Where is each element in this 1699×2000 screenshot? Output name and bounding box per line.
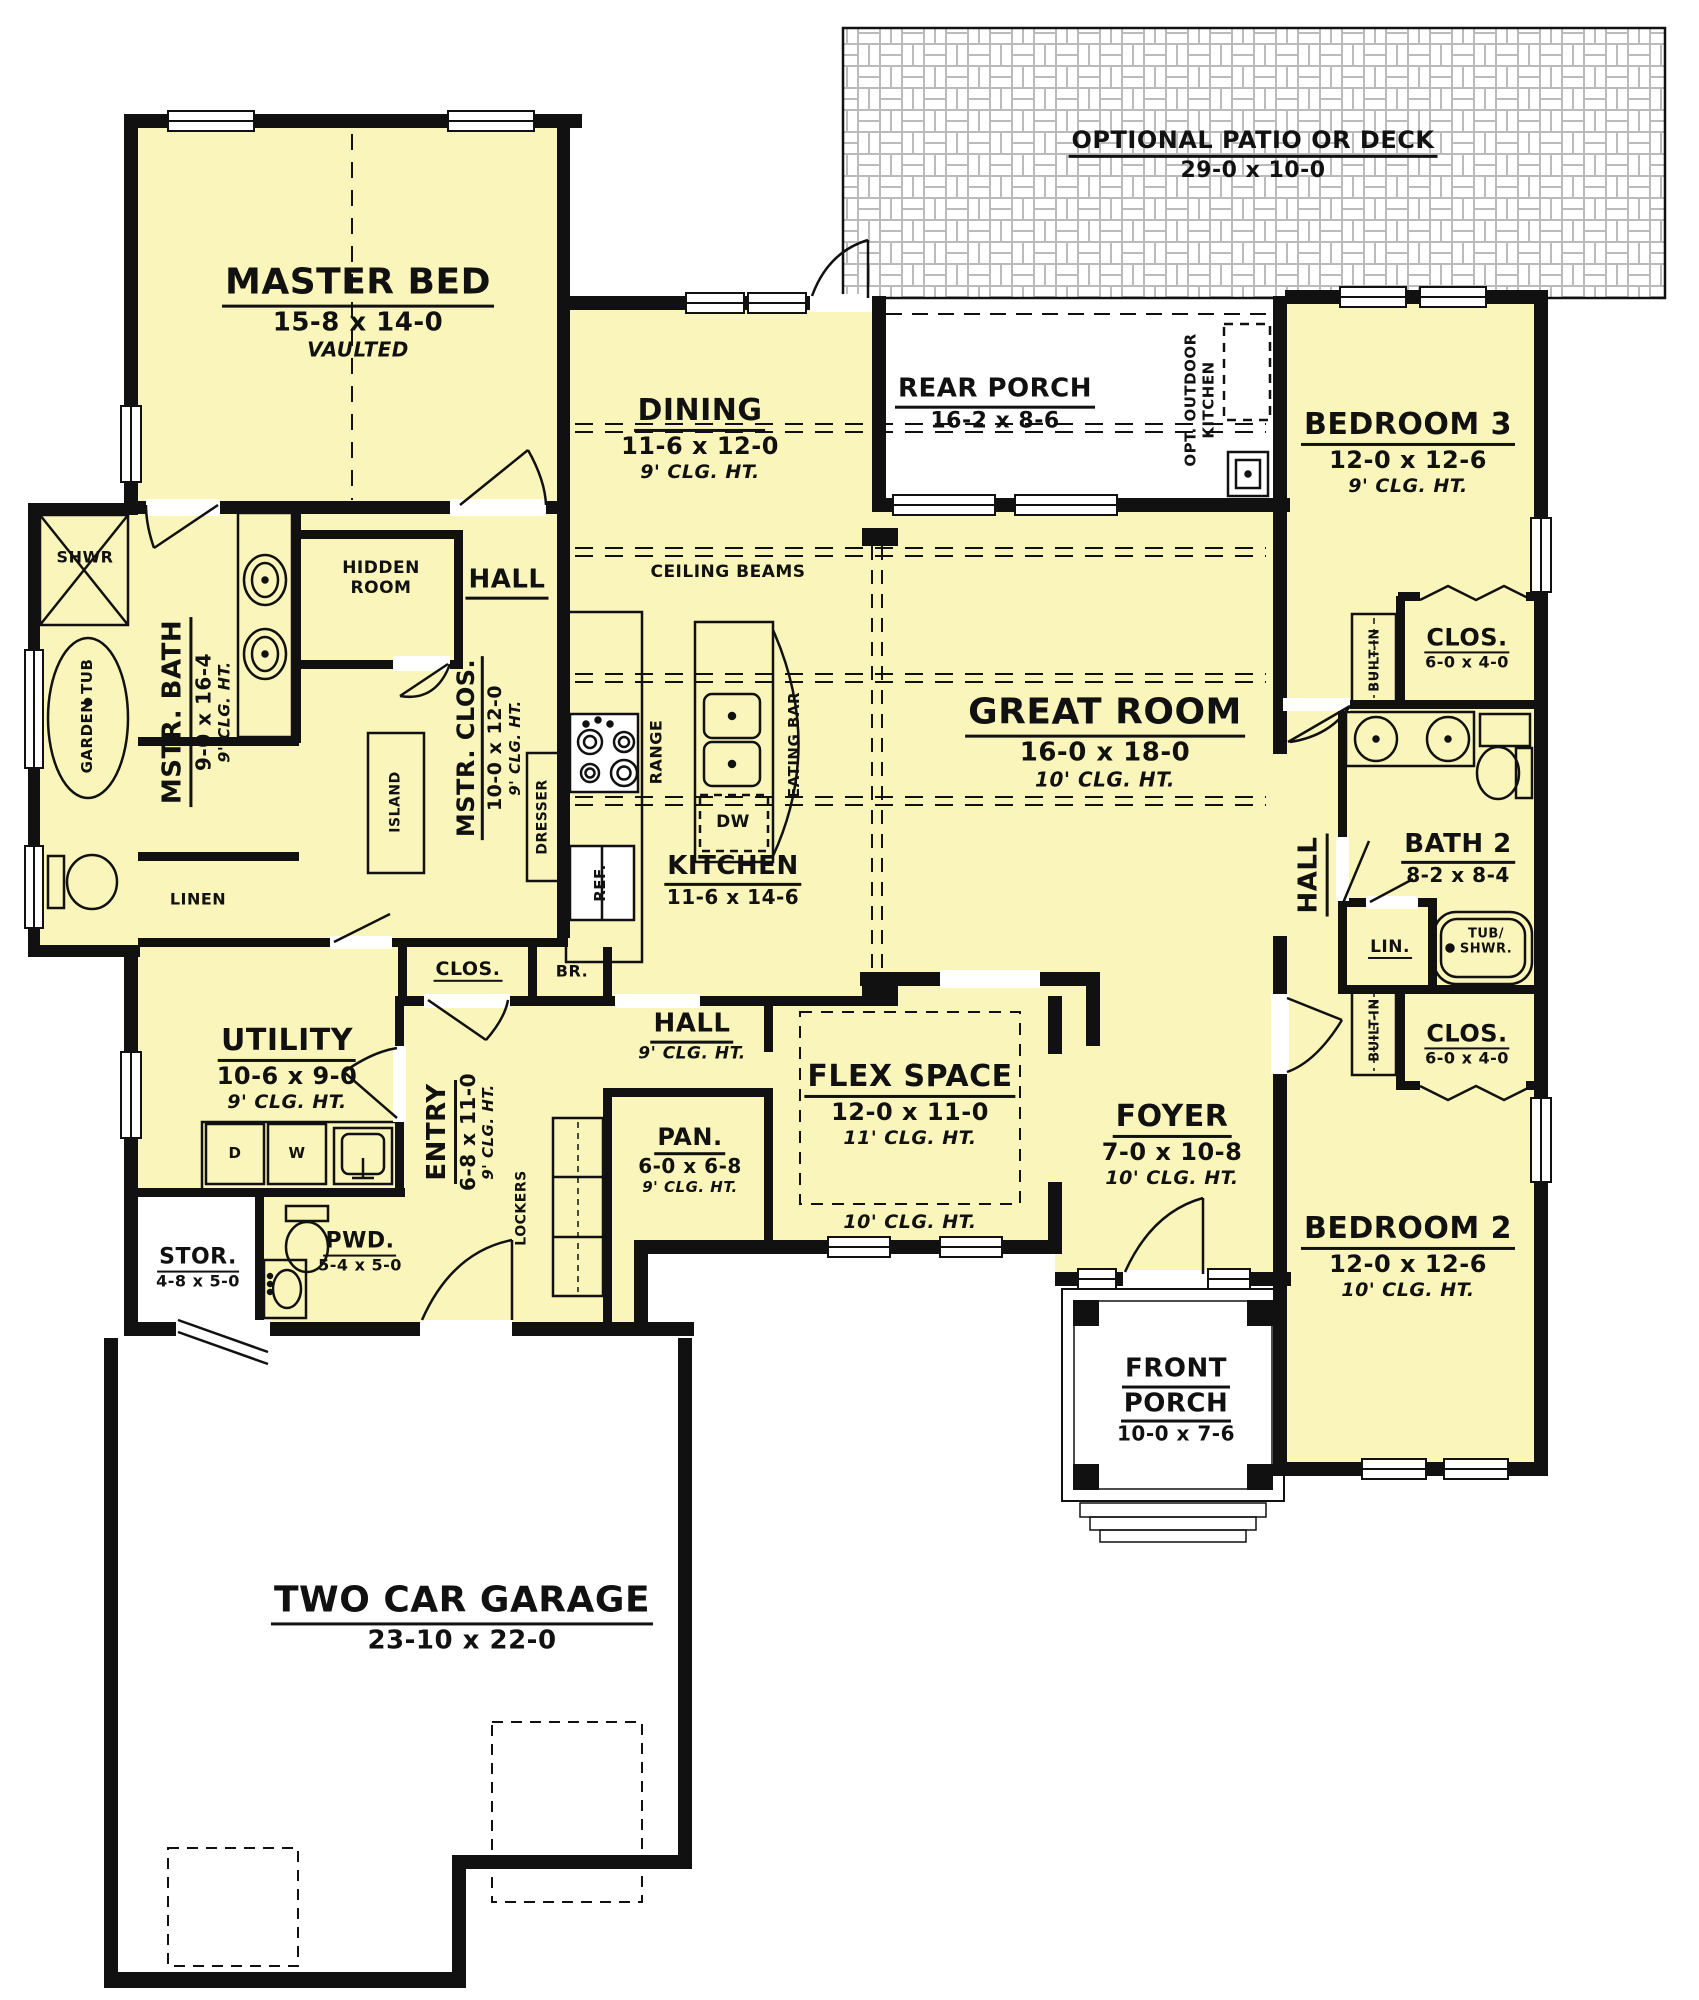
label-built-in-2: BUILT-IN [1367, 998, 1382, 1062]
label-closet-island: ISLAND [388, 771, 405, 832]
label-built-in-1: BUILT-IN [1367, 628, 1382, 692]
label-shower: SHWR [57, 549, 114, 568]
garage-pad-2 [492, 1722, 642, 1902]
room-label-clos-entry: CLOS. [434, 958, 503, 982]
room-label-bath2: BATH 2 8-2 x 8-4 [1401, 829, 1515, 887]
room-label-bedroom-2: BEDROOM 2 12-0 x 12-6 10' CLG. HT. [1301, 1211, 1515, 1301]
room-label-foyer: FOYER 7-0 x 10-8 10' CLG. HT. [1102, 1099, 1243, 1189]
range-icon [570, 714, 638, 792]
room-label-hidden-room: HIDDEN ROOM [342, 558, 420, 598]
outdoor-kitchen-icon [1224, 324, 1270, 496]
label-lin-closet: LIN. [1368, 937, 1412, 959]
room-label-rear-porch: REAR PORCH 16-2 x 8-6 [895, 374, 1095, 435]
label-washer: W [288, 1145, 305, 1163]
room-label-hall-left: HALL [465, 565, 548, 600]
room-label-front-porch: FRONT PORCH 10-0 x 7-6 [1117, 1354, 1235, 1447]
room-label-pantry: PAN. 6-0 x 6-8 9' CLG. HT. [638, 1123, 742, 1197]
label-eating-bar: EATING BAR [786, 692, 804, 798]
label-dresser: DRESSER [535, 779, 552, 854]
room-label-storage: STOR. 4-8 x 5-0 [156, 1245, 240, 1292]
room-label-utility: UTILITY 10-6 x 9-0 9' CLG. HT. [217, 1023, 358, 1113]
floor-plan: OPTIONAL PATIO OR DECK 29-0 x 10-0 REAR … [0, 0, 1699, 2000]
label-range: RANGE [648, 720, 667, 785]
room-label-garage: TWO CAR GARAGE 23-10 x 22-0 [271, 1579, 653, 1656]
label-flex-clg2: 10' CLG. HT. [843, 1211, 976, 1233]
label-broom-closet: BR. [556, 963, 588, 982]
room-label-clos3: CLOS. 6-0 x 4-0 [1424, 623, 1509, 672]
label-linen: LINEN [170, 891, 226, 910]
room-label-patio: OPTIONAL PATIO OR DECK 29-0 x 10-0 [1069, 126, 1438, 184]
room-label-hall-center: HALL 9' CLG. HT. [638, 1009, 745, 1064]
room-label-powder: PWD. 5-4 x 5-0 [318, 1229, 402, 1276]
label-lockers: LOCKERS [514, 1170, 531, 1245]
room-label-great-room: GREAT ROOM 16-0 x 18-0 10' CLG. HT. [965, 692, 1245, 793]
label-dryer: D [229, 1145, 242, 1163]
room-label-mstr-clos: MSTR. CLOS. 10-0 x 12-0 9' CLG. HT. [452, 656, 524, 840]
room-label-dining: DINING 11-6 x 12-0 9' CLG. HT. [621, 393, 779, 483]
room-label-kitchen: KITCHEN 11-6 x 14-6 [664, 851, 801, 909]
room-label-entry: ENTRY 6-8 x 11-0 9' CLG. HT. [422, 1073, 498, 1191]
label-refrigerator: REF. [592, 864, 610, 902]
room-label-hall-right: HALL [1294, 833, 1329, 916]
garage-pad-1 [168, 1848, 298, 1966]
room-label-clos2: CLOS. 6-0 x 4-0 [1424, 1019, 1509, 1068]
room-label-master-bed: MASTER BED 15-8 x 14-0 VAULTED [222, 262, 494, 363]
label-ceiling-beams: CEILING BEAMS [650, 562, 805, 582]
room-label-flex-space: FLEX SPACE 12-0 x 11-0 11' CLG. HT. [804, 1059, 1015, 1149]
label-tub-shwr: TUB/ SHWR. [1460, 927, 1512, 958]
label-garden-tub: GARDEN TUB [79, 659, 97, 774]
room-label-bedroom-3: BEDROOM 3 12-0 x 12-6 9' CLG. HT. [1301, 407, 1515, 497]
label-opt-outdoor-kitchen: OPT. OUTDOOR KITCHEN [1182, 333, 1217, 466]
room-label-mstr-bath: MSTR. BATH 9-0 x 16-4 9' CLG. HT. [157, 617, 234, 807]
label-dishwasher: DW [716, 812, 750, 832]
